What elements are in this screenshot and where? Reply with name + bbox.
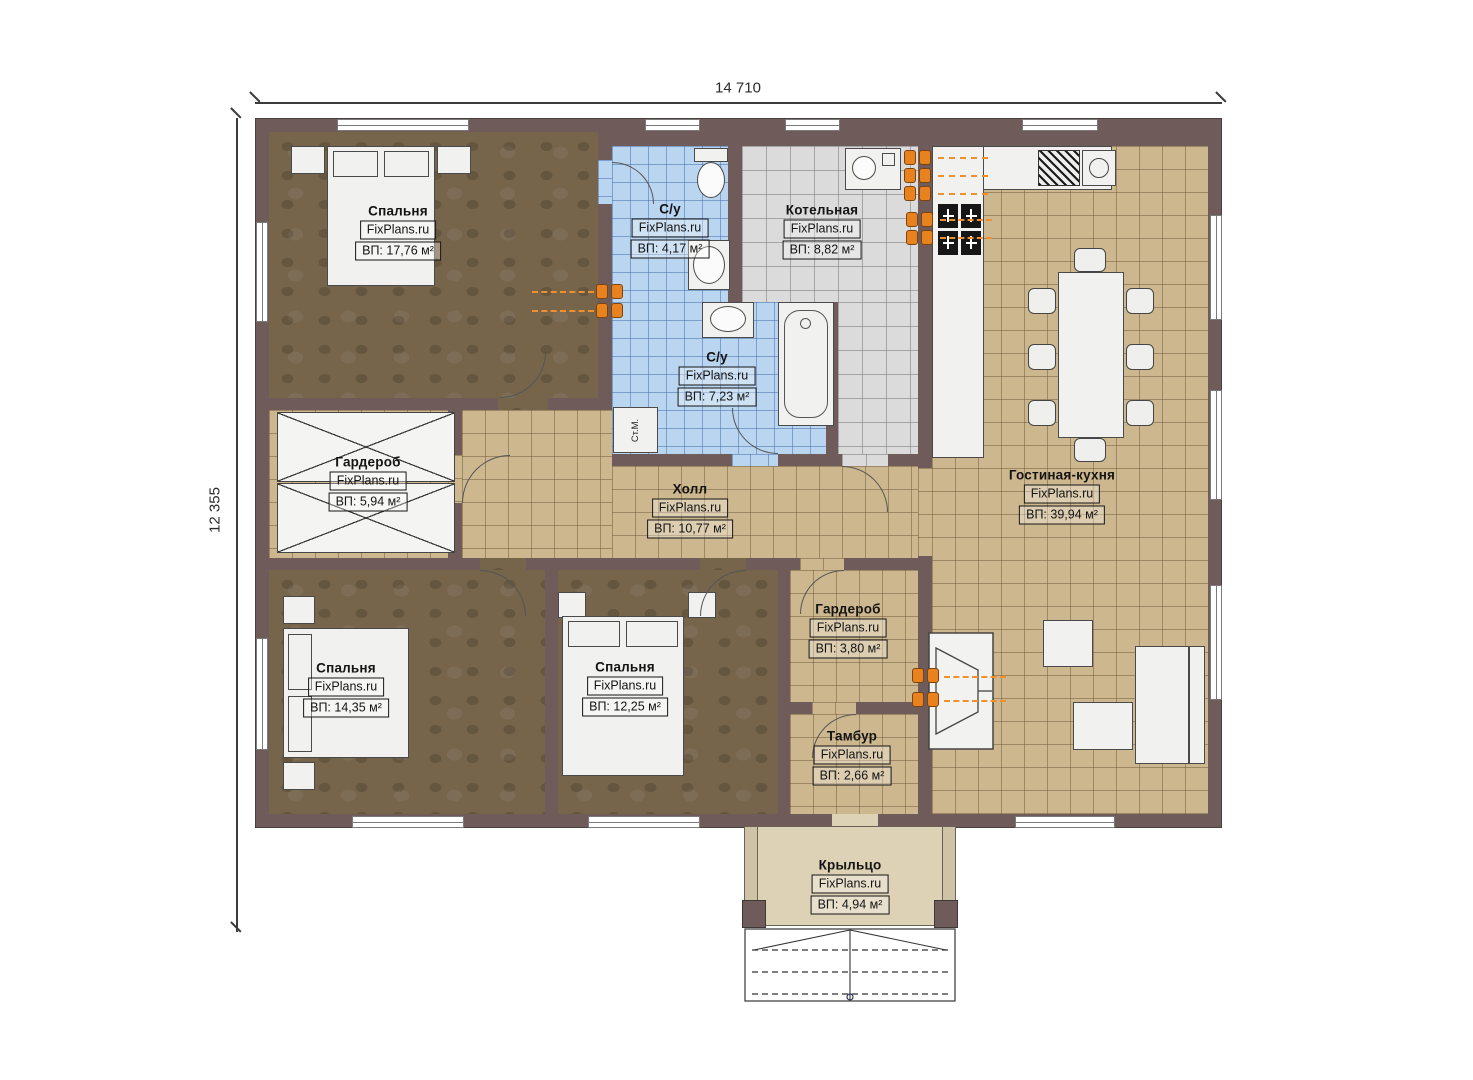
room-brand: FixPlans.ru (587, 677, 664, 696)
window (1210, 215, 1222, 320)
door-opening (598, 160, 612, 204)
stove-burner (938, 231, 958, 255)
heater-lead-line (532, 291, 594, 293)
room-brand: FixPlans.ru (632, 219, 709, 238)
dimension-line-top (255, 102, 1222, 104)
chair (1126, 288, 1154, 314)
window (1210, 390, 1222, 500)
room-name: Тамбур (827, 729, 877, 744)
room-brand: FixPlans.ru (814, 746, 891, 765)
nightstand (283, 596, 315, 624)
passage-opening (918, 468, 932, 556)
room-area: ВП: 39,94 м² (1019, 506, 1105, 525)
door-opening (732, 454, 778, 466)
room-area: ВП: 2,66 м² (813, 767, 892, 786)
chair (1028, 400, 1056, 426)
chair (1074, 438, 1106, 462)
pillow (384, 151, 429, 177)
window (785, 119, 840, 131)
pillow (333, 151, 378, 177)
room-label-wc-main: С/у FixPlans.ru ВП: 7,23 м² (678, 350, 757, 407)
toilet-tank (694, 148, 728, 162)
dimension-width-label: 14 710 (715, 80, 761, 97)
window (588, 816, 700, 828)
door-opening (842, 454, 888, 466)
heater-symbol (904, 168, 931, 183)
heater-symbol (904, 186, 931, 201)
dining-table (1058, 272, 1124, 438)
room-brand: FixPlans.ru (679, 367, 756, 386)
chair (1028, 288, 1056, 314)
boiler-tank (852, 156, 876, 180)
heater-lead-line (938, 193, 988, 195)
room-area: ВП: 4,94 м² (811, 896, 890, 915)
door-opening (498, 398, 548, 410)
heater-symbol (912, 692, 939, 707)
chair (1074, 248, 1106, 272)
room-name: Спальня (595, 660, 655, 675)
room-boiler-floor-b (838, 302, 918, 454)
room-name: Крыльцо (819, 858, 882, 873)
room-label-bedroom-2: Спальня FixPlans.ru ВП: 14,35 м² (303, 661, 389, 718)
room-name: Спальня (316, 661, 376, 676)
heater-lead-line (532, 310, 594, 312)
room-name: С/у (659, 202, 681, 217)
room-label-wardrobe-2: Гардероб FixPlans.ru ВП: 3,80 м² (809, 602, 888, 659)
window (337, 119, 469, 131)
heater-symbol (906, 230, 933, 245)
floor-plan: Ст.М. (0, 0, 1473, 1080)
stove-burner (961, 231, 981, 255)
room-brand: FixPlans.ru (308, 678, 385, 697)
porch-steps (744, 928, 956, 1002)
room-label-vestibule: Тамбур FixPlans.ru ВП: 2,66 м² (813, 729, 892, 786)
window (256, 222, 268, 322)
room-label-wardrobe-1: Гардероб FixPlans.ru ВП: 5,94 м² (329, 455, 408, 512)
heater-lead-line (938, 157, 988, 159)
room-name: С/у (706, 350, 728, 365)
room-area: ВП: 17,76 м² (355, 242, 441, 261)
porch-post (742, 900, 766, 928)
heater-symbol (596, 284, 623, 299)
heater-symbol (596, 303, 623, 318)
pillow (626, 621, 678, 647)
room-brand: FixPlans.ru (812, 875, 889, 894)
room-name: Гардероб (815, 602, 880, 617)
fireplace (928, 632, 994, 750)
nightstand (291, 146, 325, 174)
heater-lead-line (944, 676, 1006, 678)
sink-bowl (1089, 158, 1109, 178)
room-area: ВП: 3,80 м² (809, 640, 888, 659)
dimension-height-label: 12 355 (207, 487, 224, 533)
dimension-line-left (236, 118, 238, 932)
dish-drainer (1038, 150, 1080, 186)
washing-machine-label: Ст.М. (630, 418, 641, 441)
room-label-boiler: Котельная FixPlans.ru ВП: 8,82 м² (783, 203, 862, 260)
chair (1028, 344, 1056, 370)
room-label-hall: Холл FixPlans.ru ВП: 10,77 м² (647, 482, 733, 539)
heater-symbol (906, 212, 933, 227)
toilet (697, 162, 725, 198)
room-brand: FixPlans.ru (652, 499, 729, 518)
boiler-valve (882, 153, 895, 166)
door-opening (800, 558, 844, 570)
window (1210, 585, 1222, 700)
window (645, 119, 700, 131)
stove-burner (961, 204, 981, 228)
room-area: ВП: 4,17 м² (631, 240, 710, 259)
room-area: ВП: 8,82 м² (783, 241, 862, 260)
heater-lead-line (940, 219, 992, 221)
window (256, 638, 268, 750)
door-opening (700, 558, 746, 570)
sofa-back (1189, 646, 1205, 764)
window (1022, 119, 1098, 131)
heater-symbol (912, 668, 939, 683)
chair (1126, 344, 1154, 370)
nightstand (558, 592, 586, 618)
room-area: ВП: 12,25 м² (582, 698, 668, 717)
nightstand (437, 146, 471, 174)
dimension-tick (1215, 91, 1226, 102)
room-label-porch: Крыльцо FixPlans.ru ВП: 4,94 м² (811, 858, 890, 915)
bathtub-drain (800, 318, 811, 329)
room-label-living-kitchen: Гостиная-кухня FixPlans.ru ВП: 39,94 м² (1009, 468, 1115, 525)
room-name: Холл (673, 482, 708, 497)
room-area: ВП: 10,77 м² (647, 520, 733, 539)
stove-burner (938, 204, 958, 228)
window (1015, 816, 1115, 828)
room-label-bedroom-3: Спальня FixPlans.ru ВП: 12,25 м² (582, 660, 668, 717)
room-area: ВП: 14,35 м² (303, 699, 389, 718)
room-brand: FixPlans.ru (810, 619, 887, 638)
room-brand: FixPlans.ru (360, 221, 437, 240)
door-opening (480, 558, 526, 570)
room-brand: FixPlans.ru (784, 220, 861, 239)
porch-post (934, 900, 958, 928)
ottoman (1073, 702, 1133, 750)
room-name: Гостиная-кухня (1009, 468, 1115, 483)
heater-symbol (904, 150, 931, 165)
room-brand: FixPlans.ru (330, 472, 407, 491)
heater-lead-line (938, 175, 988, 177)
room-label-wc-top: С/у FixPlans.ru ВП: 4,17 м² (631, 202, 710, 259)
coffee-table (1043, 620, 1093, 667)
room-label-bedroom-1: Спальня FixPlans.ru ВП: 17,76 м² (355, 204, 441, 261)
washing-machine: Ст.М. (613, 407, 658, 453)
heater-lead-line (940, 237, 992, 239)
room-name: Гардероб (335, 455, 400, 470)
sofa-seat (1135, 646, 1189, 764)
pillow (568, 621, 620, 647)
dimension-tick (230, 107, 241, 118)
dimension-tick (249, 91, 260, 102)
room-name: Спальня (368, 204, 428, 219)
room-area: ВП: 5,94 м² (329, 493, 408, 512)
room-name: Котельная (786, 203, 858, 218)
nightstand (283, 762, 315, 790)
room-brand: FixPlans.ru (1024, 485, 1101, 504)
heater-lead-line (944, 700, 1006, 702)
chair (1126, 400, 1154, 426)
window (352, 816, 464, 828)
door-opening (812, 702, 856, 714)
sink-basin (710, 306, 746, 332)
room-area: ВП: 7,23 м² (678, 388, 757, 407)
